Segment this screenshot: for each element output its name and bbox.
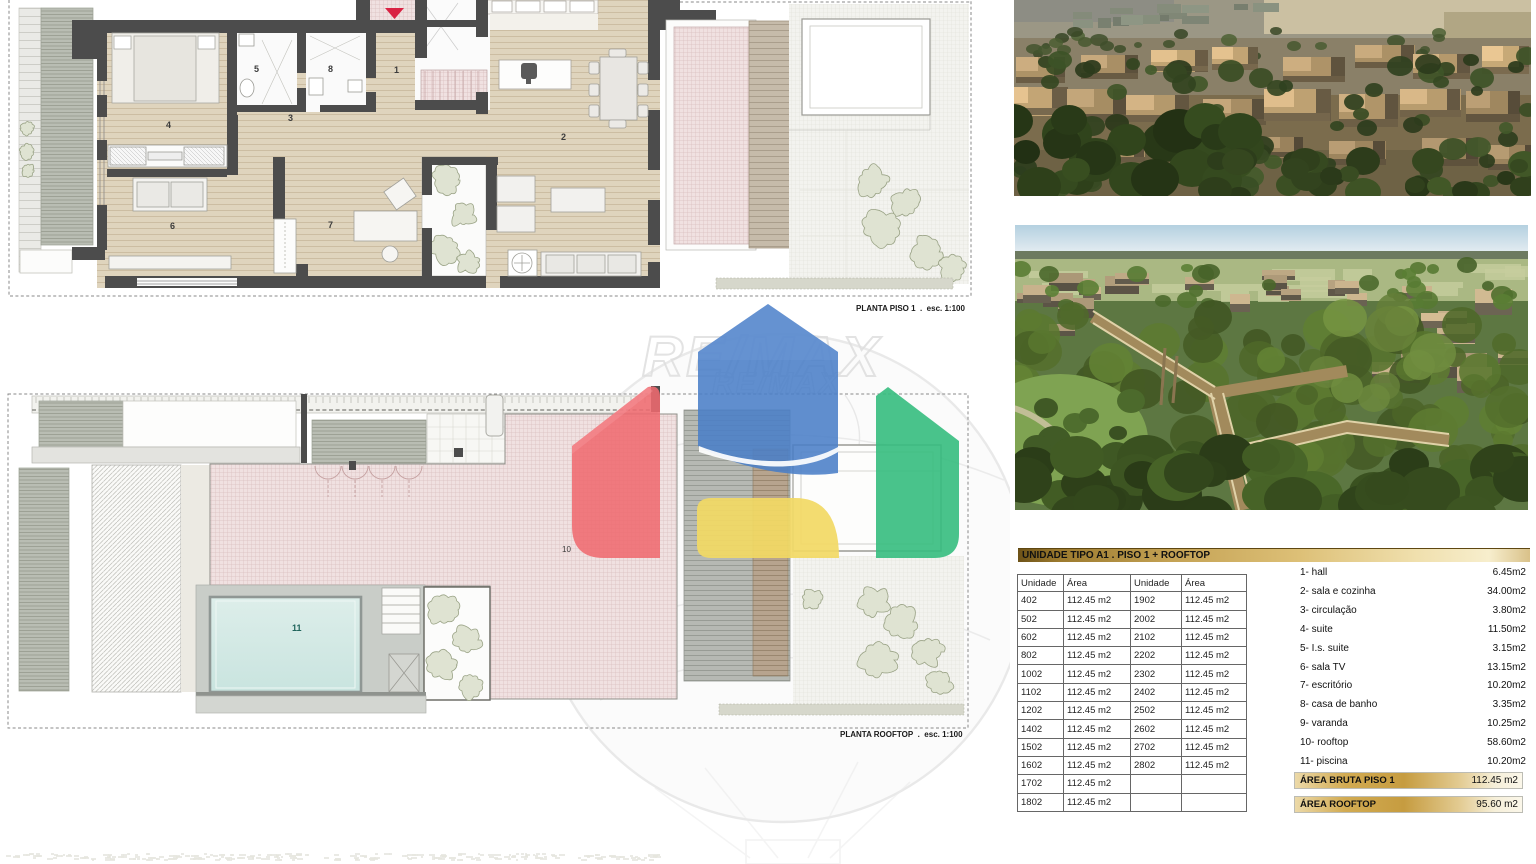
svg-text:1: 1 [394, 65, 399, 75]
svg-text:5: 5 [254, 64, 259, 74]
svg-text:2: 2 [561, 132, 566, 142]
svg-text:6: 6 [170, 221, 175, 231]
svg-text:7: 7 [328, 220, 333, 230]
svg-text:11: 11 [292, 623, 302, 633]
svg-text:10: 10 [562, 545, 571, 554]
svg-text:3: 3 [288, 113, 293, 123]
svg-text:PLANTA PISO 1 . esc. 1:100: PLANTA PISO 1 . esc. 1:100 [856, 304, 965, 313]
svg-text:8: 8 [328, 64, 333, 74]
svg-text:4: 4 [166, 120, 171, 130]
svg-text:PLANTA ROOFTOP . esc. 1:100: PLANTA ROOFTOP . esc. 1:100 [840, 730, 963, 739]
